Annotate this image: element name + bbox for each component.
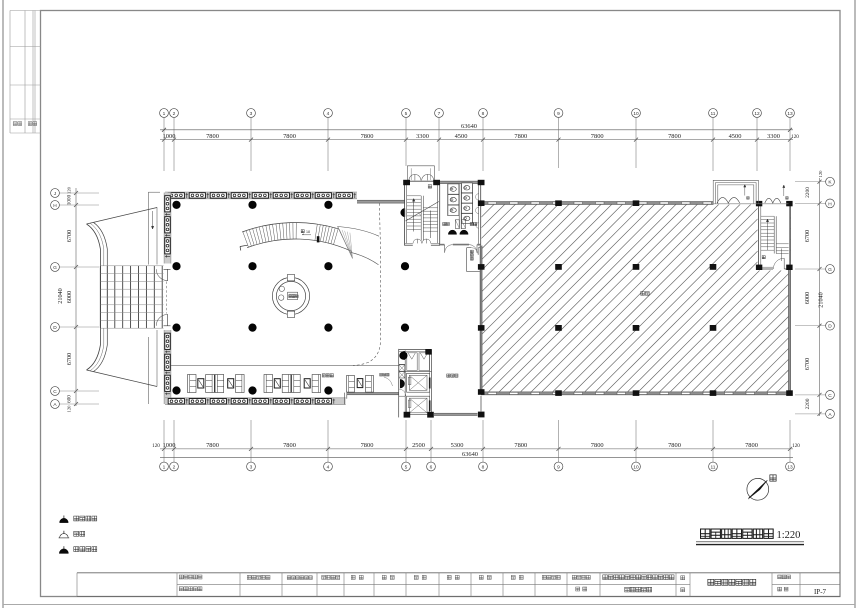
svg-text:6700: 6700 [66,353,73,365]
svg-text:6: 6 [430,464,433,470]
svg-text:1: 1 [163,111,166,117]
svg-text:120: 120 [67,186,72,194]
svg-text:C: C [53,389,57,395]
svg-text:3: 3 [250,464,253,470]
svg-text:1000: 1000 [163,133,176,140]
svg-text:1: 1 [163,464,166,470]
svg-text:4500: 4500 [455,133,468,140]
svg-text:7800: 7800 [206,442,219,449]
svg-text:11: 11 [711,464,716,470]
svg-text:600: 600 [67,395,73,403]
svg-text:3300: 3300 [767,133,780,140]
svg-text:21040: 21040 [818,292,825,307]
svg-text:7800: 7800 [283,442,296,449]
svg-text:120: 120 [791,134,799,140]
svg-text:5: 5 [405,111,408,117]
svg-text:9: 9 [557,111,560,117]
svg-text:6700: 6700 [804,230,811,242]
svg-text:120: 120 [818,170,823,178]
svg-text:6700: 6700 [804,358,811,370]
svg-text:1000: 1000 [163,442,176,449]
svg-text:5: 5 [405,464,408,470]
svg-text:120: 120 [152,443,160,449]
svg-text:13: 13 [787,464,793,470]
svg-text:7800: 7800 [591,133,604,140]
svg-text:7800: 7800 [514,133,527,140]
svg-text:D: D [53,325,57,331]
svg-text:6000: 6000 [66,291,73,303]
svg-text:3300: 3300 [416,133,429,140]
svg-text:11: 11 [711,111,716,117]
svg-text:10: 10 [633,111,639,117]
svg-text:7800: 7800 [361,133,374,140]
svg-text:7800: 7800 [514,442,527,449]
svg-text:3: 3 [250,111,253,117]
svg-text:120: 120 [792,443,800,449]
svg-text:7800: 7800 [668,133,681,140]
svg-text:D: D [828,324,832,330]
svg-text:9: 9 [557,464,560,470]
svg-text:4500: 4500 [729,133,742,140]
svg-text:IP-7: IP-7 [814,588,827,596]
svg-text:2200: 2200 [805,398,811,409]
svg-text:6700: 6700 [66,230,73,242]
svg-text:7800: 7800 [361,442,374,449]
svg-text:18: 18 [306,230,310,234]
svg-text:8: 8 [482,111,485,117]
svg-text:2: 2 [173,111,176,117]
svg-text:7800: 7800 [745,442,758,449]
svg-text:2500: 2500 [412,442,425,449]
svg-text:8: 8 [482,464,485,470]
svg-text:21040: 21040 [57,288,64,303]
svg-text:G: G [828,267,832,273]
svg-text:10: 10 [633,464,639,470]
svg-text:2200: 2200 [805,187,811,198]
svg-text:7: 7 [438,111,441,117]
svg-text:1000: 1000 [67,194,73,205]
svg-text:1:220: 1:220 [777,530,801,541]
svg-text:7800: 7800 [591,442,604,449]
svg-text:63640: 63640 [462,451,478,458]
svg-text:120: 120 [67,405,72,413]
svg-text:7800: 7800 [668,442,681,449]
svg-text:12: 12 [754,111,760,117]
svg-text:13: 13 [787,111,793,117]
svg-text:63640: 63640 [461,123,477,130]
svg-text:C: C [828,393,832,399]
svg-text:2: 2 [173,464,176,470]
svg-text:7800: 7800 [206,133,219,140]
svg-text:G: G [53,265,57,271]
svg-text:H: H [828,201,832,207]
svg-text:H: H [53,203,57,209]
svg-text:7800: 7800 [283,133,296,140]
svg-text:4: 4 [327,111,330,117]
svg-text:6000: 6000 [804,292,811,304]
svg-text:4: 4 [327,464,330,470]
svg-text:5300: 5300 [451,442,464,449]
